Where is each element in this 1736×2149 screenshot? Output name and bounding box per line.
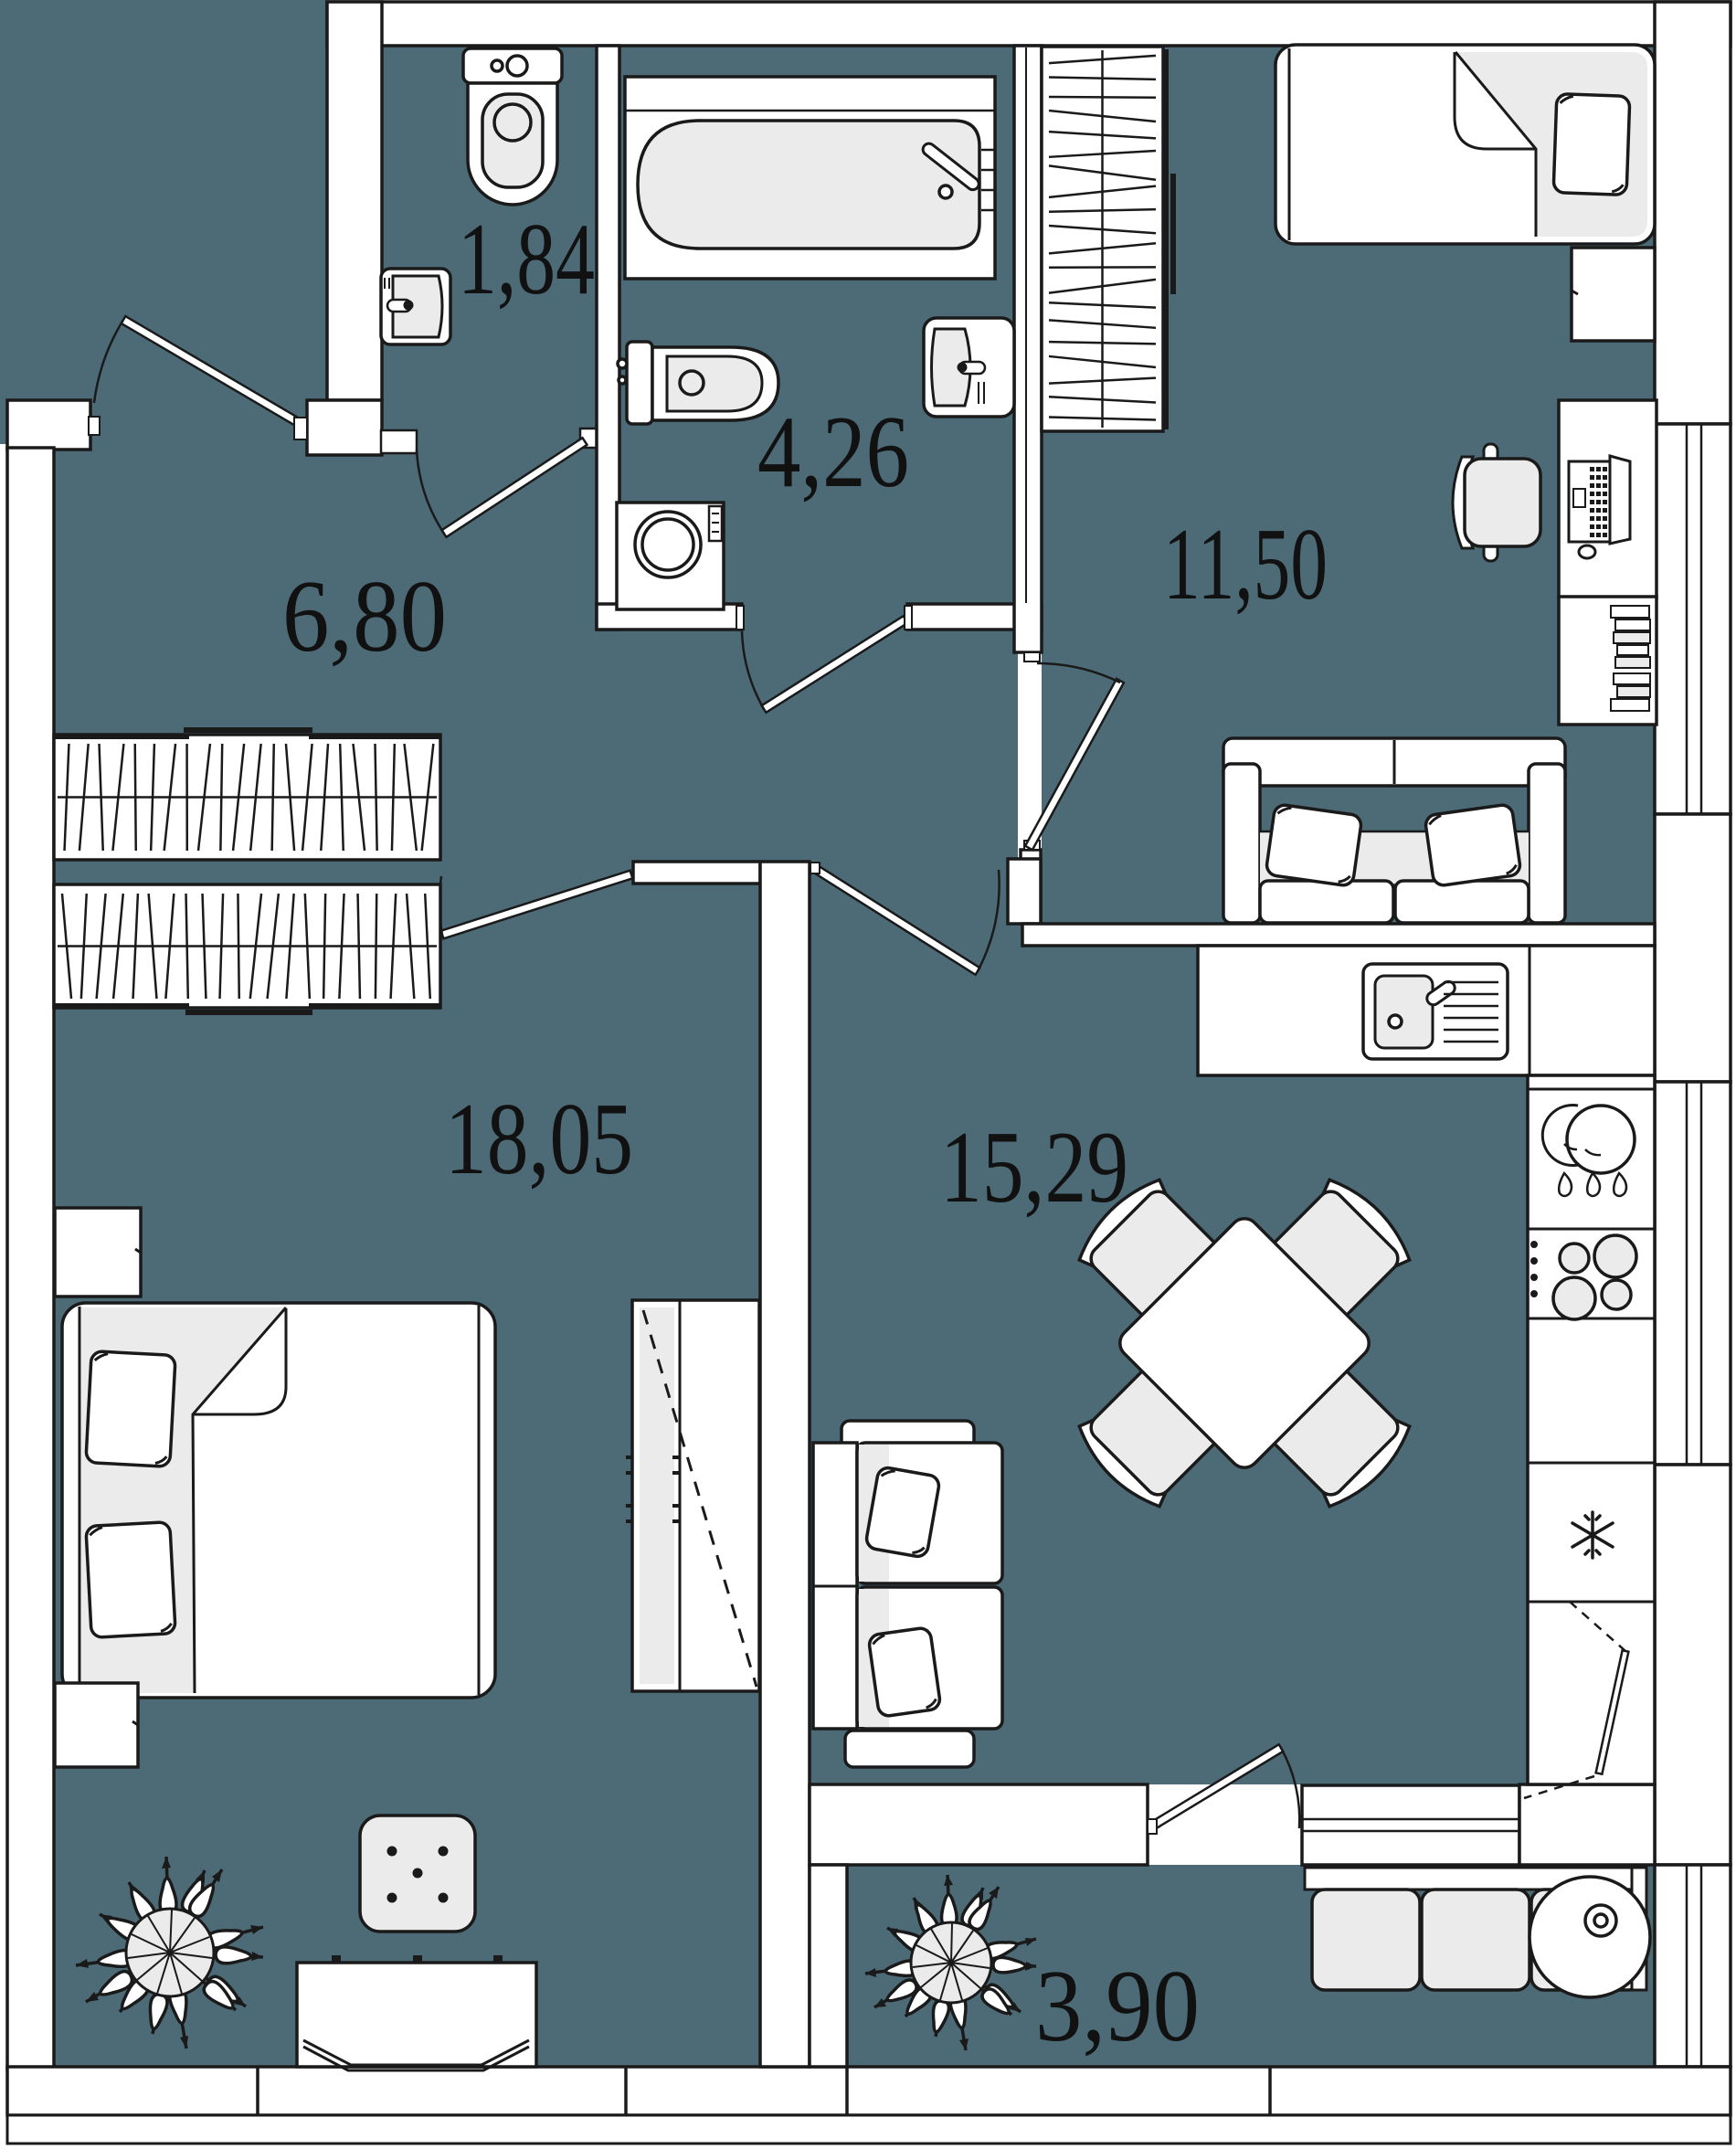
svg-text:15,29: 15,29 <box>940 1111 1128 1224</box>
svg-text:4,26: 4,26 <box>757 396 909 509</box>
svg-text:6,80: 6,80 <box>282 560 447 673</box>
svg-text:18,05: 18,05 <box>445 1083 633 1196</box>
svg-text:1,84: 1,84 <box>458 203 595 316</box>
svg-text:11,50: 11,50 <box>1163 508 1328 621</box>
svg-text:3,90: 3,90 <box>1035 1950 1200 2063</box>
